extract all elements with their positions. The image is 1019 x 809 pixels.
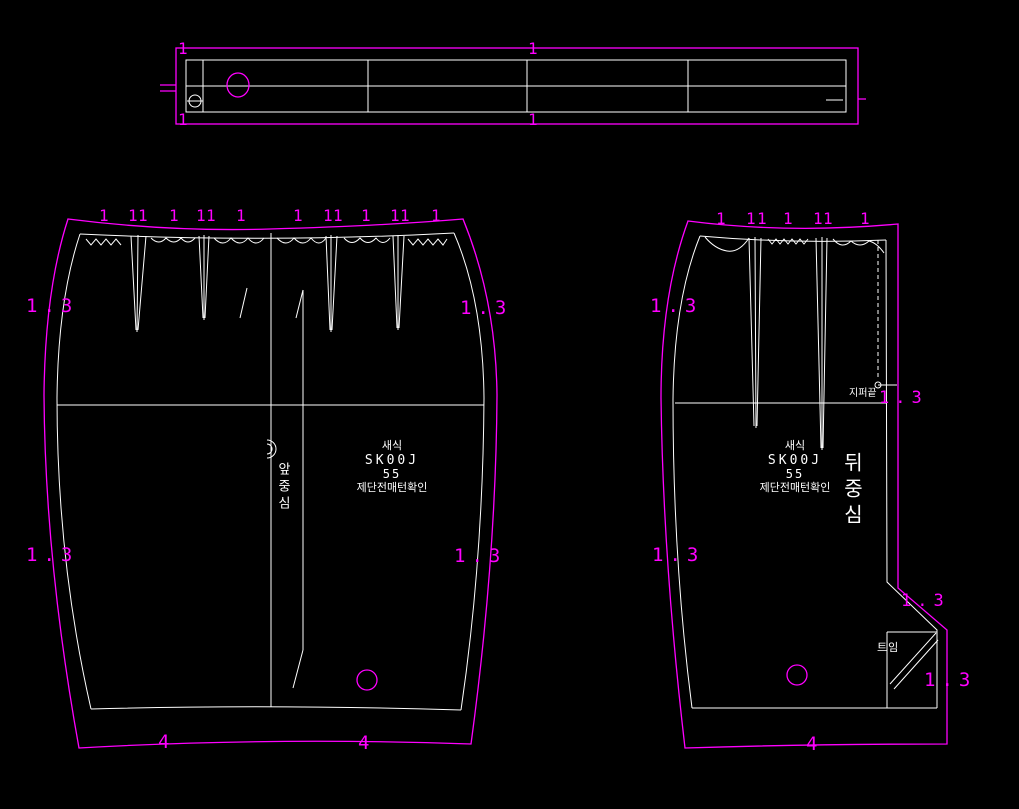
notch-label: 1 (757, 211, 767, 227)
size-label: 55 (733, 468, 857, 481)
cad-canvas[interactable]: 1 1 1 1 1 1 1 1 1 1 1 1 1 1 1 1 1 1 1 1 … (0, 0, 1019, 809)
waistband-divisions (186, 60, 846, 112)
notch-label: 1 (431, 208, 441, 224)
notch-label: 1 (293, 208, 303, 224)
front-drill-hole-icon (357, 670, 377, 690)
back-pattern-info: 새식 SK00J 55 제단전매턴확인 (733, 440, 857, 493)
notch-label: 1 (206, 208, 216, 224)
back-center-sewline (886, 240, 937, 708)
hem-allowance-label: 4 (358, 734, 369, 753)
waistband-piece (160, 48, 866, 124)
notch-label: 1 (178, 41, 188, 57)
notch-label: 1 (196, 208, 206, 224)
drill-hole-icon (227, 73, 249, 97)
zipper-end-label: 지퍼끝 (849, 389, 877, 399)
notch-label: 1 (178, 112, 188, 128)
cutting-note: 제단전매턴확인 (330, 482, 454, 494)
seam-allowance-label: 1.3 (652, 546, 704, 565)
pattern-drawing (0, 0, 1019, 809)
notch-label: 1 (716, 211, 726, 227)
back-ease-waves (705, 237, 884, 253)
seam-allowance-label: 1.3 (650, 297, 702, 316)
seam-allowance-label: 1.3 (879, 390, 928, 407)
notch-label: 1 (528, 112, 538, 128)
notch-label: 1 (323, 208, 333, 224)
seam-allowance-label: 1.3 (454, 547, 506, 566)
front-hem-sewline (91, 707, 461, 710)
front-balance-mark (240, 288, 247, 318)
notch-label: 1 (99, 208, 109, 224)
notch-label: 1 (390, 208, 400, 224)
seam-allowance-label: 1.3 (26, 297, 78, 316)
vent-label: 트임 (877, 642, 899, 653)
waistband-edge-ticks (160, 85, 866, 99)
notch-label: 1 (333, 208, 343, 224)
size-label: 55 (330, 468, 454, 481)
seam-allowance-label: 1.3 (901, 593, 950, 610)
front-darts (131, 235, 404, 332)
notch-label: 1 (860, 211, 870, 227)
front-grain-line-arrow (293, 290, 303, 688)
notch-label: 1 (823, 211, 833, 227)
hem-allowance-label: 4 (806, 735, 817, 754)
notch-label: 1 (400, 208, 410, 224)
back-drill-hole-icon (787, 665, 807, 685)
hem-allowance-label: 4 (158, 733, 169, 752)
front-pattern-info: 새식 SK00J 55 제단전매턴확인 (330, 440, 454, 493)
cutting-note: 제단전매턴확인 (733, 482, 857, 494)
seam-allowance-label: 1.3 (924, 671, 976, 690)
seam-allowance-label: 1.3 (26, 546, 78, 565)
notch-label: 1 (813, 211, 823, 227)
notch-label: 1 (138, 208, 148, 224)
back-darts (749, 237, 827, 450)
notch-label: 1 (128, 208, 138, 224)
style-number: SK00J (330, 454, 454, 468)
center-front-label: 앞중심 (276, 462, 289, 513)
button-hole-icon (187, 95, 203, 107)
notch-label: 1 (169, 208, 179, 224)
style-number: SK00J (733, 454, 857, 468)
seam-allowance-label: 1.3 (460, 299, 512, 318)
notch-label: 1 (746, 211, 756, 227)
notch-label: 1 (783, 211, 793, 227)
notch-label: 1 (236, 208, 246, 224)
notch-label: 1 (361, 208, 371, 224)
style-label: 새식 (330, 440, 454, 452)
notch-label: 1 (528, 41, 538, 57)
style-label: 새식 (733, 440, 857, 452)
